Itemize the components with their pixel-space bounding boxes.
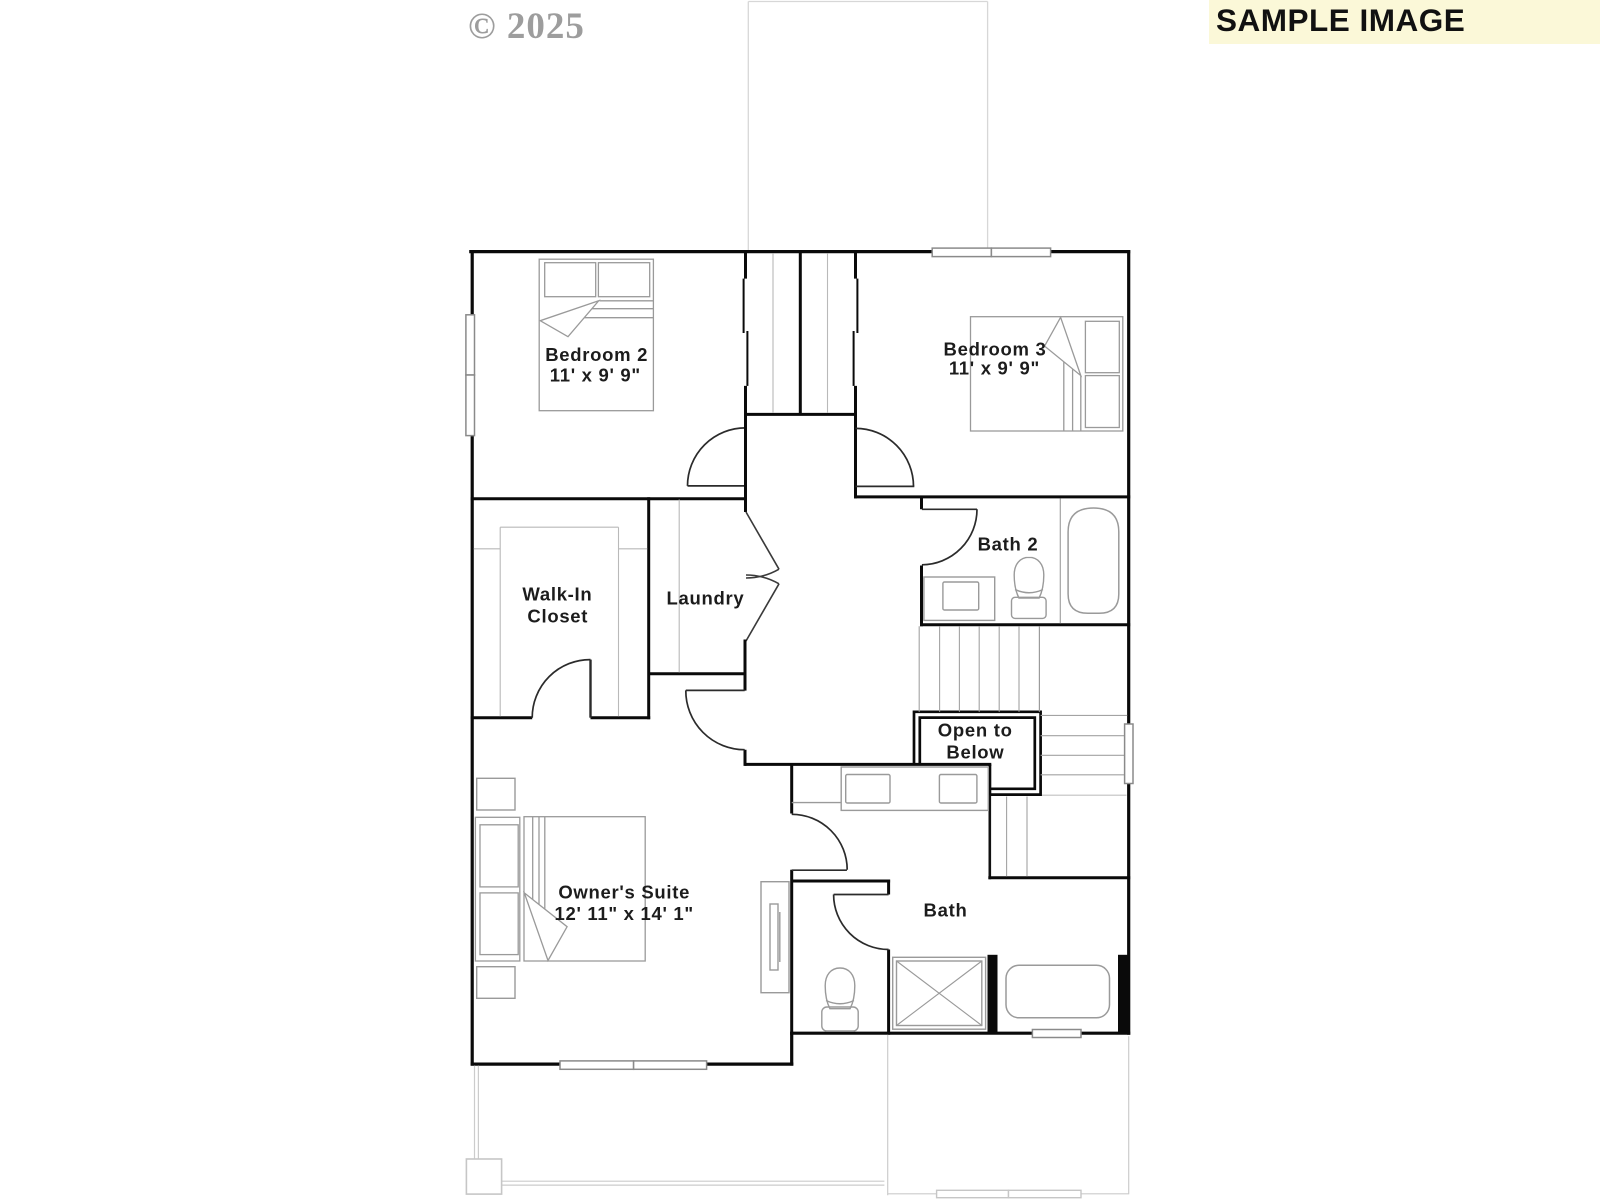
- svg-text:12' 11" x 14' 1": 12' 11" x 14' 1": [555, 903, 694, 924]
- svg-text:Open to: Open to: [938, 720, 1013, 741]
- svg-text:Bedroom 2: Bedroom 2: [545, 344, 648, 365]
- svg-text:11' x 9' 9": 11' x 9' 9": [550, 365, 641, 386]
- svg-text:Owner's Suite: Owner's Suite: [558, 882, 690, 903]
- svg-text:Bath 2: Bath 2: [978, 534, 1039, 555]
- svg-text:Laundry: Laundry: [667, 588, 745, 609]
- svg-text:Bath: Bath: [924, 900, 968, 921]
- svg-text:11' x 9' 9": 11' x 9' 9": [949, 358, 1040, 379]
- svg-text:Closet: Closet: [527, 606, 588, 627]
- svg-text:Bedroom 3: Bedroom 3: [944, 339, 1047, 360]
- svg-text:SAMPLE IMAGE: SAMPLE IMAGE: [1216, 2, 1465, 38]
- svg-text:Walk-In: Walk-In: [522, 584, 592, 605]
- svg-text:© 2025: © 2025: [468, 6, 585, 47]
- svg-text:Below: Below: [946, 742, 1004, 763]
